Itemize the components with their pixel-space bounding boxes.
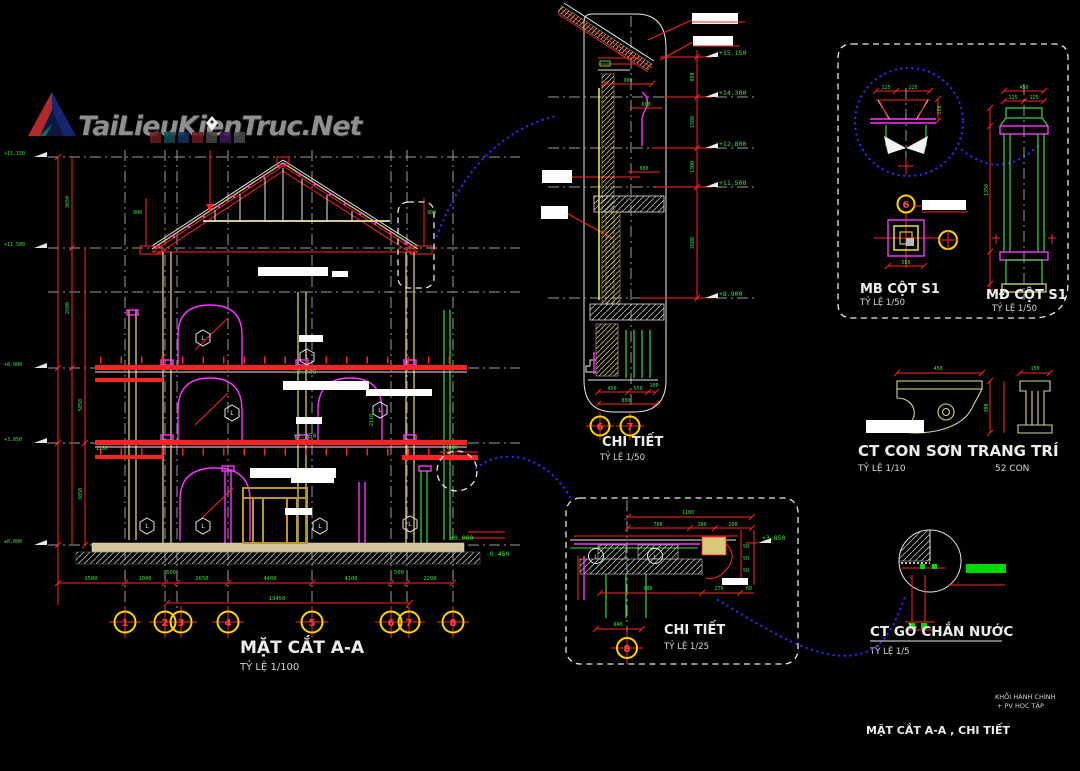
hex-mark: L — [318, 523, 322, 530]
dim-label: 900 — [427, 210, 436, 216]
label-block — [922, 200, 966, 210]
dim-label: 700 — [653, 522, 662, 528]
detail-title: MB CỘT S1 — [860, 281, 940, 297]
dim-label: 2650 — [195, 576, 208, 582]
dim-label: 13450 — [269, 596, 286, 602]
dim-label: 50 — [743, 568, 749, 574]
dim-label: 2110 — [369, 414, 375, 426]
dim-label: 125 — [1029, 95, 1038, 101]
level-flags-left: +15.150 +11.500 +8.900 +3.850 ±0.000 — [4, 151, 47, 545]
block-label: KHỐI HÀNH CHÍNH — [995, 691, 1056, 701]
main-section-view: 3650 2600 5050 3850 +15.150 +11.500 +8.9… — [4, 150, 520, 673]
dim-label: 900 — [643, 586, 652, 592]
grid-bubble: 1 — [109, 606, 141, 638]
grid-bubble-label: 7 — [406, 618, 413, 629]
dim-label: 4400 — [263, 576, 276, 582]
dim-label: 270 — [714, 586, 723, 592]
water-drip-detail: CT GỜ CHẮN NƯỚC TỶ LỆ 1/5 — [869, 530, 1013, 657]
left-dimension-chain: 3650 2600 5050 3850 — [55, 154, 88, 605]
detail-title: CHI TIẾT — [602, 433, 663, 450]
dim-label: 280 — [697, 522, 706, 528]
dim-label: 550 — [901, 260, 910, 266]
grid-bubble: 8 — [437, 606, 469, 638]
right-level-chain: +15.150 +14.300 +12.800 +11.500 +8.900 8… — [640, 49, 746, 301]
watermark-logo: TaiLieuKienTruc.Net — [26, 90, 361, 140]
grid-bubbles: 1 2 3 4 5 6 7 — [109, 606, 469, 638]
dim-label: 150 — [1030, 366, 1039, 372]
dashed-box — [566, 498, 798, 664]
dim-label: 1180 — [682, 510, 694, 516]
level-label: +3.850 — [293, 432, 317, 440]
column-plan: 550 6 — [874, 196, 968, 270]
dim-label: 1000 — [138, 576, 151, 582]
hex-mark: L — [201, 335, 205, 342]
dim-label: 800 — [621, 398, 630, 404]
dim-label: 500 — [394, 570, 404, 576]
dim-label: 900 — [133, 210, 142, 216]
circle-mark: L — [653, 554, 657, 561]
grid-bubble-label: 3 — [178, 618, 185, 629]
detail-scale: TỶ LỆ 1/5 — [869, 645, 910, 657]
dim-label: 3650 — [65, 196, 71, 208]
level-label: +3.850 — [762, 534, 786, 542]
callout-leaders — [437, 116, 906, 656]
corbel-detail: 450 300 150 CT CON SƠN TRANG TRÍ TỶ LỆ 1… — [857, 366, 1059, 474]
arches — [178, 305, 382, 541]
dim-label: 125 — [881, 85, 890, 91]
dim-label: 100 — [649, 383, 658, 389]
wall-detail-view: 900 600 600 450 550 100 800 — [541, 3, 756, 463]
dim-label: 150 — [937, 105, 943, 114]
dim-label: 1180 — [96, 446, 108, 452]
dim-label: 4100 — [344, 576, 357, 582]
dim-label: 2600 — [65, 302, 71, 314]
dim-label: 1350 — [984, 184, 990, 196]
dashed-box — [838, 44, 1068, 318]
grid-bubble-label: 6 — [597, 422, 604, 433]
grid-lines-horizontal — [48, 157, 520, 545]
grid-bubble: 5 — [296, 606, 328, 638]
level-label: ±0.000 — [4, 539, 22, 545]
walls-columns — [127, 252, 450, 543]
hex-mark: L — [145, 523, 149, 530]
capital-detail: 125 225 150 — [870, 85, 943, 174]
eave-detail-box: 1180 700 280 200 L L 50 50 50 — [566, 498, 798, 664]
detail-scale: TỶ LỆ 1/10 — [857, 462, 906, 474]
grid-bubble-label: 2 — [162, 618, 169, 629]
grid-bubble-label: 4 — [225, 618, 232, 629]
dim-label: 1180 — [446, 445, 458, 451]
level-label: +12.800 — [719, 140, 746, 148]
level-label: -0.450 — [486, 550, 510, 558]
detail-title: CHI TIẾT — [664, 621, 725, 638]
detail-title: MĐ CỘT S1 — [986, 287, 1067, 303]
dim-label: 900 — [623, 78, 632, 84]
dim-label: 225 — [908, 85, 917, 91]
grid-bubble-label: 1 — [122, 618, 129, 629]
grid-bubble-label: 5 — [309, 618, 316, 629]
dim-label: 50 — [743, 544, 749, 550]
dim-label: 60 — [746, 586, 752, 592]
detail-scale: TỶ LỆ 1/50 — [859, 296, 905, 308]
detail-scale: TỶ LỆ 1/50 — [991, 302, 1037, 314]
dim-label: 1500 — [84, 576, 97, 582]
arch-leaders — [195, 318, 233, 520]
level-label: +15.150 — [4, 151, 25, 157]
dim-label: 50 — [743, 556, 749, 562]
callout-leader — [962, 146, 1038, 165]
level-label: +11.500 — [719, 179, 746, 187]
dim-label: 450 — [933, 366, 942, 372]
hex-mark: L — [230, 410, 234, 417]
section-scale: TỶ LỆ 1/100 — [239, 659, 299, 673]
grid-bubble-label: 6 — [388, 618, 395, 629]
logo-diamond-icon — [205, 116, 219, 132]
dim-label: 125 — [1008, 95, 1017, 101]
sheet-title: MẶT CẮT A-A , CHI TIẾT — [866, 722, 1010, 737]
sheet-titles: KHỐI HÀNH CHÍNH + PV HỌC TẬP MẶT CẮT A-A… — [866, 691, 1056, 737]
hex-mark: L — [201, 523, 205, 530]
grid-bubble: 8 — [611, 632, 643, 664]
level-label: ±0.000 — [450, 534, 474, 542]
grid-bubble: 6 7 — [375, 606, 425, 638]
label-block — [542, 170, 572, 183]
level-label: +15.150 — [719, 49, 746, 57]
floor-slabs: 1180 1180 2110 — [95, 360, 478, 460]
grid-bubble-label: 8 — [624, 644, 631, 655]
dim-label: 2600 — [690, 237, 696, 249]
dim-label: 1500 — [690, 116, 696, 128]
grid-bubble-label: 6 — [903, 200, 910, 211]
circle-mark: L — [594, 554, 598, 561]
dim-label: 550 — [633, 386, 642, 392]
block-label: + PV HỌC TẬP — [997, 701, 1044, 710]
grid-bubble: 2 3 — [149, 606, 197, 638]
detail-title: CT GỜ CHẮN NƯỚC — [870, 621, 1013, 640]
label-block — [722, 578, 748, 585]
dim-label: 300 — [984, 403, 990, 412]
dim-label: 200 — [728, 522, 737, 528]
detail-scale: TỶ LỆ 1/50 — [599, 451, 645, 463]
dim-label: 600 — [641, 102, 650, 108]
level-label: +8.900 — [4, 362, 22, 368]
level-label: +14.300 — [719, 89, 746, 97]
level-label: +8.900 — [293, 368, 317, 376]
dim-label: 850 — [690, 72, 696, 81]
detail-title: CT CON SƠN TRANG TRÍ — [858, 441, 1059, 460]
hex-mark: L — [408, 521, 412, 528]
logo-triangle-icon — [26, 90, 78, 140]
highlight-bar — [966, 564, 1006, 573]
grid-bubble-label: 7 — [627, 422, 634, 433]
bottom-dimensions: 1500 1000 600 2650 4400 4100 500 2200 13… — [55, 570, 456, 606]
grid-bubble-label: 8 — [450, 618, 457, 629]
dim-label: 2200 — [423, 576, 436, 582]
dim-label: 640 — [613, 622, 622, 628]
grid-bubble: 4 — [212, 606, 244, 638]
dim-label: 5050 — [78, 399, 84, 411]
label-blocks — [250, 267, 432, 515]
label-block — [693, 36, 733, 46]
hex-mark: L — [378, 407, 382, 414]
dim-label: 1300 — [690, 161, 696, 173]
level-label: +3.850 — [4, 437, 22, 443]
dim-label: 600 — [166, 570, 176, 576]
level-label: +11.500 — [4, 242, 25, 248]
detail-scale: TỶ LỆ 1/25 — [663, 640, 709, 652]
dim-label: 3850 — [78, 488, 84, 500]
dim-label: 600 — [639, 166, 648, 172]
section-marks: L L L L L L L L +8.900 +3.850 — [140, 330, 417, 534]
label-block — [541, 206, 568, 219]
label-block — [866, 420, 924, 433]
column-elevation: 450 125 125 1350 — [984, 84, 1056, 300]
corbel-count: 52 CON — [995, 464, 1029, 474]
hex-mark: L — [305, 354, 309, 361]
logo-color-squares — [150, 132, 245, 143]
dim-label: 450 — [607, 386, 616, 392]
cad-sheet: TaiLieuKienTruc.Net — [0, 0, 1080, 771]
section-title: MẶT CẮT A-A — [240, 634, 365, 658]
level-label: +8.900 — [719, 290, 743, 298]
column-details-box: 125 225 150 450 125 1 — [838, 44, 1068, 318]
